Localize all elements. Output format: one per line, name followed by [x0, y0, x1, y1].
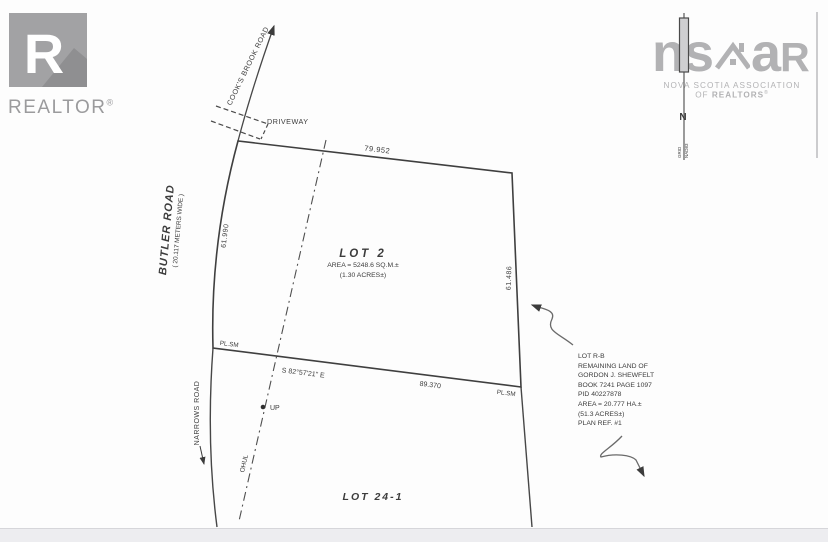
lot-rb-line: (51.3 ACRES±): [578, 411, 624, 418]
survey-plan-page: R REALTOR® ns aR NOVA SCOTIA ASSOCIATION…: [0, 0, 828, 542]
nsar-of: OF: [695, 91, 708, 100]
utility-pole-label: UP: [270, 405, 280, 412]
lot24-1-name: LOT 24-1: [343, 491, 404, 503]
nsar-association-text: NOVA SCOTIA ASSOCIATION: [650, 81, 814, 90]
cooks-brook-road-line: [238, 26, 274, 141]
survey-marker-sw: PL.SM: [219, 340, 239, 349]
driveway-end: [261, 124, 268, 139]
lot-rb-line: REMAINING LAND OF: [578, 363, 648, 370]
lot-rb-west-line: [521, 387, 532, 527]
overhead-utility-line: [239, 140, 326, 521]
realtor-logo-text: REALTOR: [8, 97, 107, 118]
nsar-letter-a: a: [751, 23, 780, 83]
nsar-letter-r: R: [780, 34, 809, 80]
lot-rb-line: PID 40227878: [578, 391, 622, 398]
page-bottom-edge: [0, 528, 828, 542]
north-datum-label: NAD83: [684, 143, 689, 158]
realtor-logo: R REALTOR®: [8, 12, 108, 119]
butler-road-name: BUTLER ROAD: [157, 184, 177, 276]
lot-rb-line: GORDON J. SHEWFELT: [578, 372, 654, 379]
south-line-distance: 89.370: [419, 381, 441, 391]
nsar-realtors: REALTORS: [712, 91, 764, 100]
lot2-acres: (1.30 ACRES±): [340, 272, 386, 279]
driveway-label: DRIVEWAY: [267, 117, 309, 126]
driveway-edge-north: [216, 106, 268, 124]
cooks-brook-road-label: COOK'S BROOK ROAD: [225, 25, 271, 107]
east-line-distance: 61.486: [506, 266, 514, 291]
realtor-r-letter: R: [24, 22, 64, 85]
realtor-reg-mark: ®: [107, 98, 114, 108]
survey-marker-se: PL.SM: [496, 389, 516, 398]
nsar-letters-ns: ns: [652, 23, 713, 83]
lot2-area: AREA = 5248.6 SQ.M.±: [327, 262, 399, 269]
north-line-distance: 79.952: [364, 144, 391, 156]
lot-rb-line: LOT R-B: [578, 353, 605, 360]
narrows-road-label: NARROWS ROAD: [194, 381, 201, 446]
lot-rb-note: LOT R-B REMAINING LAND OF GORDON J. SHEW…: [578, 353, 654, 427]
realtor-logo-label: REALTOR®: [8, 97, 108, 119]
lot-rb-line: AREA = 20.777 HA.±: [578, 401, 642, 408]
page-edge-line: [816, 12, 818, 158]
lot-rb-leader-arrow-upper: [532, 305, 573, 345]
north-grid-label: GRID: [677, 146, 682, 158]
nsar-logo: ns aR NOVA SCOTIA ASSOCIATION OF REALTOR…: [650, 26, 814, 100]
narrows-road-arrow: [200, 446, 204, 464]
driveway-edge-south: [211, 121, 260, 139]
utility-line-label: OHUL: [239, 454, 250, 474]
butler-road-width: ( 20.117 METERS WIDE ): [172, 194, 185, 268]
lot2-boundary: [213, 141, 521, 387]
utility-pole-marker: [261, 405, 266, 410]
house-icon: [714, 38, 750, 70]
lot-rb-leader-arrow-lower: [601, 436, 644, 476]
nsar-wordmark: ns aR: [650, 26, 814, 80]
north-n-label: N: [679, 112, 686, 123]
butler-road-labels: BUTLER ROAD ( 20.117 METERS WIDE ): [157, 184, 186, 277]
butler-road-edge-south: [210, 348, 217, 527]
lot-rb-line: PLAN REF. #1: [578, 420, 622, 427]
west-line-distance: 61.990: [221, 223, 231, 248]
lot-rb-line: BOOK 7241 PAGE 1097: [578, 382, 652, 389]
south-line-bearing: S 82°57'21" E: [281, 366, 325, 379]
nsar-reg-mark: ®: [764, 90, 769, 96]
nsar-realtors-text: OF REALTORS®: [650, 90, 814, 100]
lot2-name: LOT 2: [339, 248, 387, 260]
realtor-r-icon: R: [8, 12, 88, 89]
